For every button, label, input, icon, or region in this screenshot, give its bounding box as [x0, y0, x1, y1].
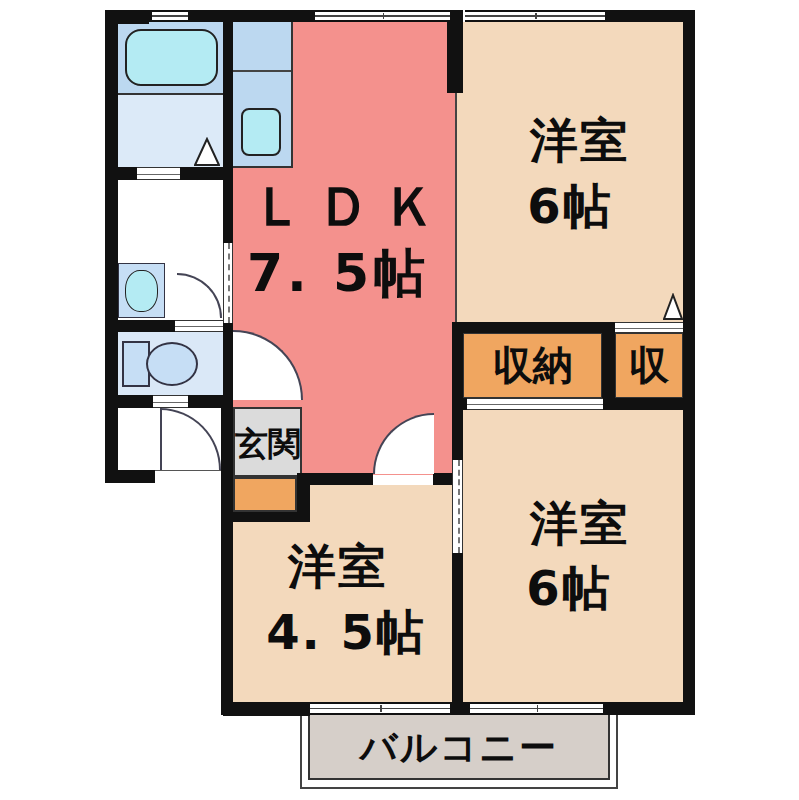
- window: [152, 10, 188, 22]
- wall: [603, 702, 695, 715]
- bedroom-bottom-left-size: 4. 5帖: [266, 608, 426, 656]
- wall: [450, 702, 470, 715]
- wall: [223, 702, 310, 716]
- balcony-label: バルコニー: [360, 729, 558, 766]
- room-bedroom-bottom-right: [463, 410, 683, 702]
- toilet-bowl-icon: [146, 342, 198, 386]
- wall: [603, 398, 683, 410]
- balcony-window: [310, 702, 450, 715]
- room-bedroom-top-right: [457, 22, 683, 322]
- bathtub-icon: [125, 29, 218, 86]
- window: [465, 10, 605, 22]
- wall: [221, 512, 310, 522]
- wall: [105, 395, 153, 408]
- washbasin-bowl-icon: [125, 270, 158, 312]
- bedroom-bottom-right-label: 洋室: [530, 499, 630, 547]
- wall: [118, 320, 175, 332]
- closet-door-icon: [663, 293, 683, 321]
- ldk-size-label: 7. 5帖: [247, 247, 429, 299]
- wall: [602, 322, 615, 410]
- bedroom-bottom-left-label: 洋室: [288, 542, 388, 590]
- ldk-bedroom-partition-line: [455, 93, 457, 322]
- bedroom-top-right-label: 洋室: [530, 116, 630, 164]
- wall: [180, 167, 233, 180]
- door-threshold: [175, 320, 223, 332]
- floor-plan: ＬＤＫ 7. 5帖 洋室 6帖 収納 収 玄関 洋室 4. 5帖 洋室 6帖 バ…: [0, 0, 799, 800]
- front-door-arc: [160, 408, 221, 470]
- door-arc: [177, 273, 222, 318]
- balcony-window: [470, 702, 603, 715]
- bedroom-bottom-right-size: 6帖: [526, 564, 611, 612]
- closet-door: [615, 322, 683, 333]
- closet-small-label: 収: [629, 345, 669, 385]
- wall: [605, 10, 695, 22]
- wall-pillar: [447, 10, 463, 93]
- closet-door: [467, 398, 603, 410]
- kitchen-counter-divider: [233, 70, 291, 72]
- wall: [188, 10, 315, 22]
- door-threshold: [153, 395, 188, 408]
- front-door-opening: [155, 470, 221, 483]
- wall-left-outer: [105, 10, 118, 483]
- sliding-door: [223, 243, 233, 323]
- wall: [452, 322, 463, 462]
- wall-right-outer: [683, 10, 695, 713]
- door-threshold: [137, 167, 180, 180]
- wall: [223, 10, 233, 243]
- kitchen-sink-icon: [241, 108, 281, 156]
- entrance-label: 玄関: [235, 427, 301, 460]
- washroom-door-icon: [194, 137, 220, 167]
- wall: [105, 470, 155, 483]
- window: [315, 10, 450, 22]
- sliding-door: [452, 460, 463, 553]
- wall: [188, 395, 233, 408]
- shoe-cabinet: [233, 477, 297, 512]
- wall: [452, 553, 463, 702]
- wall: [452, 322, 612, 333]
- ldk-label: ＬＤＫ: [251, 180, 449, 234]
- wall: [105, 167, 137, 180]
- bedroom-top-right-size: 6帖: [527, 182, 612, 230]
- wall: [221, 407, 233, 715]
- closet-main-label: 収納: [493, 345, 573, 385]
